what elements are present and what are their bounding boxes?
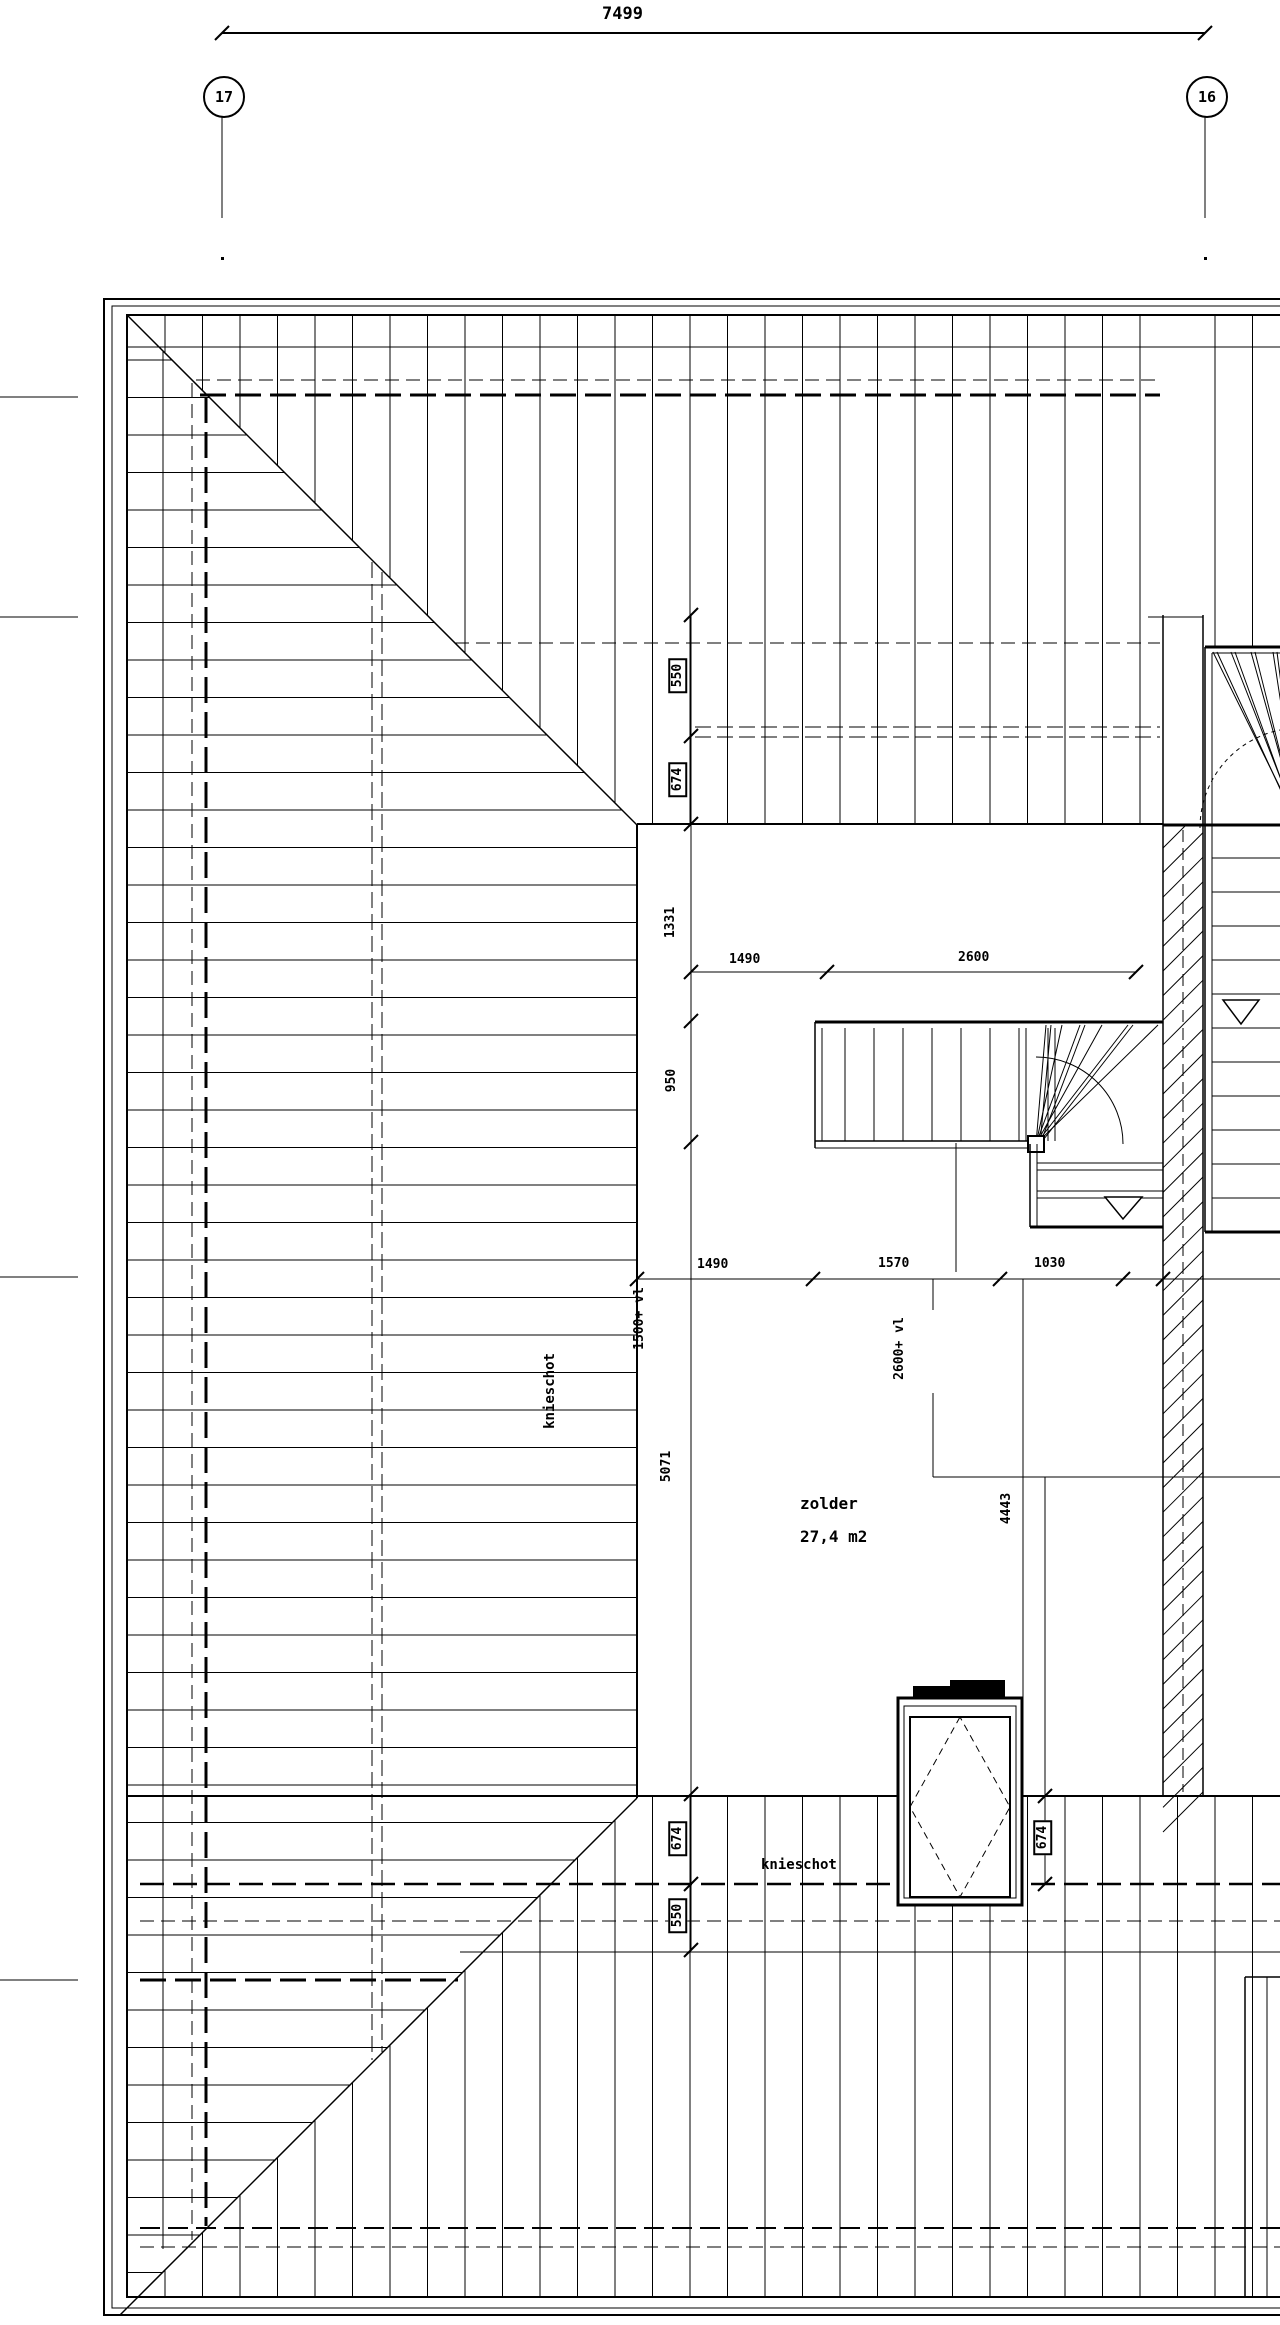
grid-bubble-17: 17 xyxy=(203,76,245,118)
dim-lower-1570: 1570 xyxy=(878,1257,909,1270)
room-area: 27,4 m2 xyxy=(800,1529,867,1545)
dim-left-1331: 1331 xyxy=(664,907,677,938)
floor-plan-drawing xyxy=(0,0,1280,2325)
dim-upper-1490: 1490 xyxy=(729,953,760,966)
grid-bubble-16: 16 xyxy=(1186,76,1228,118)
top-dimension-text: 7499 xyxy=(602,6,643,23)
dim-left-674-top: 674 xyxy=(668,762,687,797)
floor-plan-sheet: 7499 17 16 1490 2600 1490 1570 1030 550 … xyxy=(0,0,1280,2325)
dim-left-950: 950 xyxy=(665,1069,678,1092)
dim-right-674: 674 xyxy=(1033,1820,1052,1855)
dim-lower-1030: 1030 xyxy=(1034,1257,1065,1270)
knieschot-left-label: knieschot xyxy=(543,1353,557,1429)
knieschot-bottom-label: knieschot xyxy=(761,1858,837,1872)
dim-upper-2600: 2600 xyxy=(958,951,989,964)
dim-left-5071: 5071 xyxy=(660,1451,673,1482)
dim-left-550-top: 550 xyxy=(668,658,687,693)
room-name: zolder xyxy=(800,1496,858,1512)
dim-right-4443: 4443 xyxy=(1000,1493,1013,1524)
level-label-2600vl: 2600+ vl xyxy=(893,1317,906,1380)
dim-left-674-bottom: 674 xyxy=(668,1821,687,1856)
level-label-1500vl: 1500+ vl xyxy=(633,1287,646,1350)
dim-left-550-bottom: 550 xyxy=(668,1898,687,1933)
dim-lower-1490: 1490 xyxy=(697,1258,728,1271)
